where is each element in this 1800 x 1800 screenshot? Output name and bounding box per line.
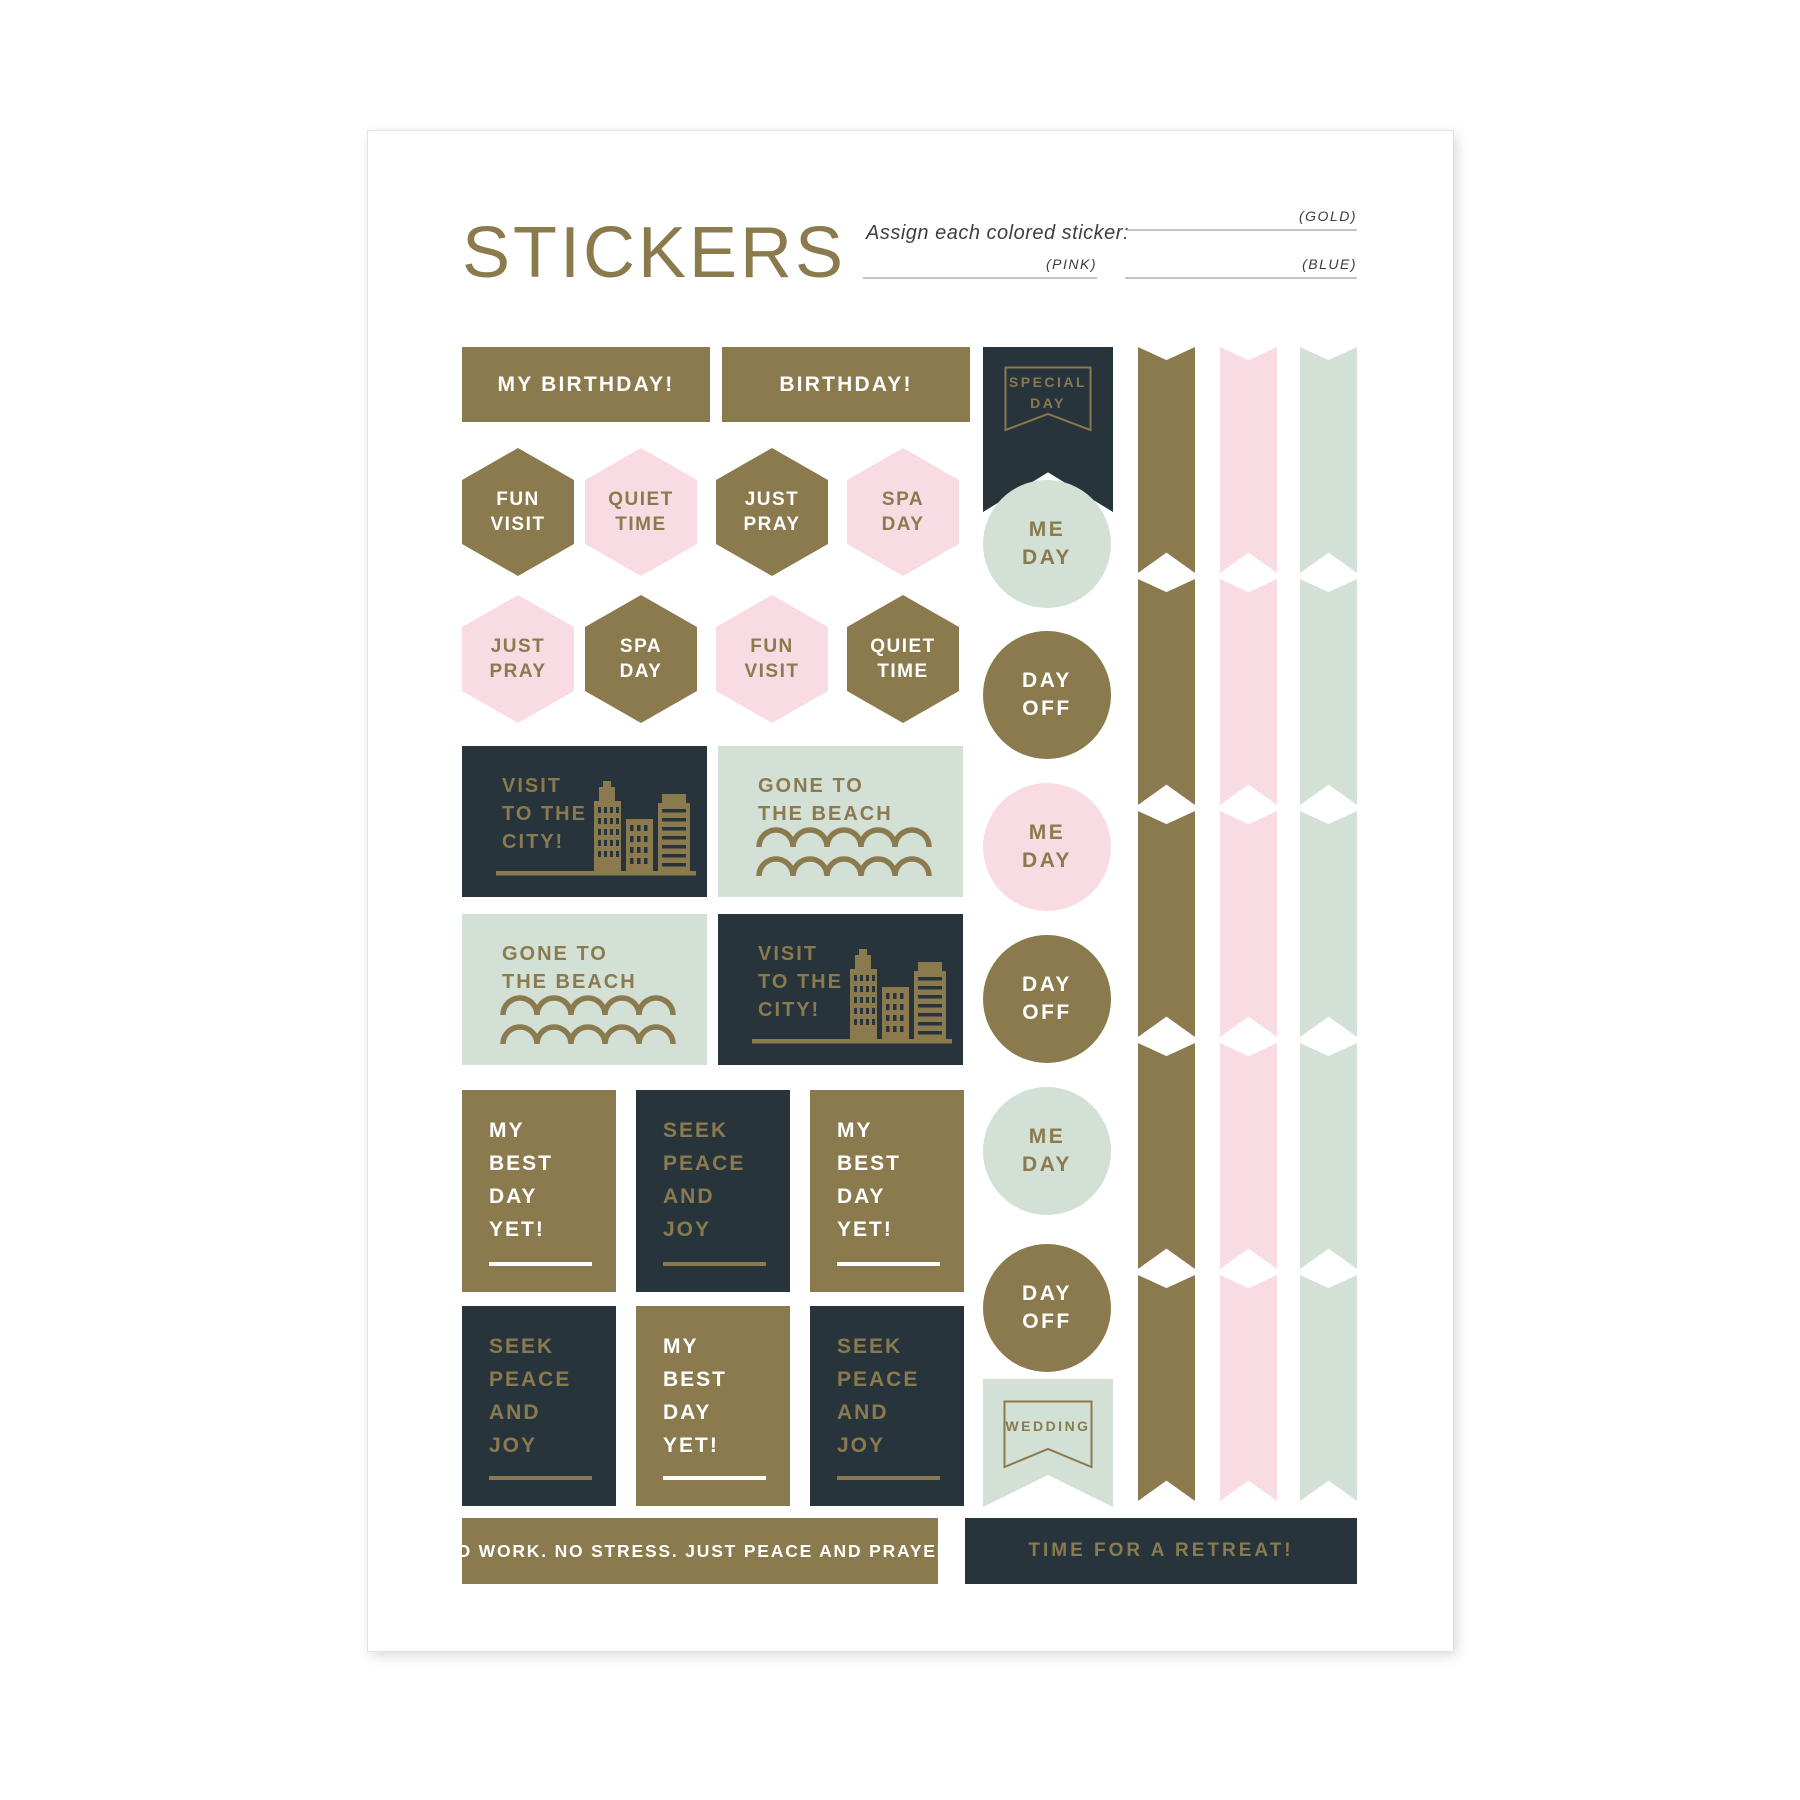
hex-label: JUST [491, 634, 546, 659]
square-label-line: MY [837, 1114, 964, 1147]
square-label-line: DAY [837, 1180, 964, 1213]
sticker-label: MY BIRTHDAY! [498, 373, 675, 397]
banner-label: WEDDING [983, 1418, 1113, 1434]
circle-label: DAY [1022, 544, 1072, 572]
hex-label: TIME [615, 512, 666, 537]
hex-label: PRAY [743, 512, 800, 537]
circle-label: ME [1029, 819, 1066, 847]
square-label-line: YET! [489, 1213, 616, 1246]
square-text: SEEK PEACE AND JOY [462, 1306, 616, 1462]
circle-day-off-3: DAY OFF [983, 1244, 1111, 1372]
hex-label: VISIT [490, 512, 545, 537]
hex-label: DAY [882, 512, 925, 537]
waves-icon [500, 987, 680, 1049]
strip-segment-mint [1300, 1043, 1357, 1269]
underline-rule [837, 1262, 940, 1266]
strip-segment-pink [1220, 1043, 1277, 1269]
circle-me-day-1: ME DAY [983, 480, 1111, 608]
hex-label: QUIET [870, 634, 936, 659]
underline-rule [663, 1262, 766, 1266]
sticker-best-day-2: MY BEST DAY YET! [810, 1090, 964, 1292]
strip-segment-gold [1138, 347, 1195, 573]
circle-label: DAY [1022, 1280, 1072, 1308]
circle-label: OFF [1022, 695, 1072, 723]
banner-label-line2: DAY [983, 395, 1113, 411]
sticker-seek-peace-3: SEEK PEACE AND JOY [810, 1306, 964, 1506]
square-label-line: YET! [837, 1213, 964, 1246]
bar-label: TIME FOR A RETREAT! [1028, 1540, 1293, 1562]
square-label-line: SEEK [837, 1330, 964, 1363]
strip-segment-gold [1138, 579, 1195, 805]
sticker-seek-peace-2: SEEK PEACE AND JOY [462, 1306, 616, 1506]
square-label-line: AND [663, 1180, 790, 1213]
blue-blank-line: (BLUE) [1125, 256, 1357, 279]
square-label-line: MY [663, 1330, 790, 1363]
page-title: STICKERS [462, 212, 846, 294]
sticker-seek-peace-1: SEEK PEACE AND JOY [636, 1090, 790, 1292]
sticker-visit-city-1: VISIT TO THE CITY! [462, 746, 707, 897]
square-label-line: PEACE [663, 1147, 790, 1180]
pink-blank-line: (PINK) [863, 256, 1097, 279]
circle-label: ME [1029, 1123, 1066, 1151]
square-label-line: PEACE [489, 1363, 616, 1396]
banner-outline-icon [1003, 1400, 1093, 1470]
hex-label: FUN [750, 634, 794, 659]
square-label-line: DAY [489, 1180, 616, 1213]
strip-segment-mint [1300, 1275, 1357, 1501]
underline-rule [837, 1476, 940, 1480]
circle-label: ME [1029, 516, 1066, 544]
square-label-line: JOY [663, 1213, 790, 1246]
sticker-gone-beach-1: GONE TO THE BEACH [718, 746, 963, 897]
square-label-line: AND [489, 1396, 616, 1429]
strip-segment-mint [1300, 347, 1357, 573]
hex-label: SPA [620, 634, 662, 659]
square-text: SEEK PEACE AND JOY [810, 1306, 964, 1462]
square-label-line: BEST [837, 1147, 964, 1180]
underline-rule [663, 1476, 766, 1480]
circle-day-off-1: DAY OFF [983, 631, 1111, 759]
strip-segment-pink [1220, 811, 1277, 1037]
sticker-retreat-bar: TIME FOR A RETREAT! [965, 1518, 1357, 1584]
strip-segment-mint [1300, 579, 1357, 805]
strip-segment-pink [1220, 347, 1277, 573]
circle-label: OFF [1022, 1308, 1072, 1336]
waves-icon [756, 819, 936, 881]
square-text: MY BEST DAY YET! [636, 1306, 790, 1462]
square-label-line: JOY [489, 1429, 616, 1462]
hex-label: JUST [745, 487, 800, 512]
strip-segment-gold [1138, 1275, 1195, 1501]
sticker-no-work-bar: NO WORK. NO STRESS. JUST PEACE AND PRAYE… [462, 1518, 938, 1584]
circle-label: DAY [1022, 847, 1072, 875]
hex-label: QUIET [608, 487, 674, 512]
sticker-visit-city-2: VISIT TO THE CITY! [718, 914, 963, 1065]
beach-label-line: GONE TO [758, 772, 893, 800]
circle-label: OFF [1022, 999, 1072, 1027]
sticker-gone-beach-2: GONE TO THE BEACH [462, 914, 707, 1065]
strip-segment-gold [1138, 1043, 1195, 1269]
bar-label: NO WORK. NO STRESS. JUST PEACE AND PRAYE… [442, 1541, 958, 1562]
strip-segment-pink [1220, 579, 1277, 805]
hex-label: SPA [882, 487, 924, 512]
sticker-birthday: BIRTHDAY! [722, 347, 970, 422]
circle-day-off-2: DAY OFF [983, 935, 1111, 1063]
circle-label: DAY [1022, 667, 1072, 695]
sticker-my-birthday: MY BIRTHDAY! [462, 347, 710, 422]
sticker-label: BIRTHDAY! [779, 373, 912, 397]
square-label-line: AND [837, 1396, 964, 1429]
square-label-line: BEST [489, 1147, 616, 1180]
assign-instruction: Assign each colored sticker: [866, 222, 1129, 245]
banner-label-line1: SPECIAL [983, 374, 1113, 390]
hex-label: FUN [496, 487, 540, 512]
square-label-line: SEEK [489, 1330, 616, 1363]
sticker-best-day-3: MY BEST DAY YET! [636, 1306, 790, 1506]
city-skyline-icon [496, 777, 696, 877]
hex-label: TIME [877, 659, 928, 684]
circle-me-day-3: ME DAY [983, 1087, 1111, 1215]
square-label-line: PEACE [837, 1363, 964, 1396]
pink-label: (PINK) [863, 256, 1097, 277]
square-text: MY BEST DAY YET! [810, 1090, 964, 1246]
hex-label: PRAY [489, 659, 546, 684]
square-label-line: MY [489, 1114, 616, 1147]
circle-me-day-2: ME DAY [983, 783, 1111, 911]
city-skyline-icon [752, 945, 952, 1045]
square-text: MY BEST DAY YET! [462, 1090, 616, 1246]
gold-label: (GOLD) [1127, 208, 1357, 229]
square-label-line: SEEK [663, 1114, 790, 1147]
sticker-best-day-1: MY BEST DAY YET! [462, 1090, 616, 1292]
hex-label: VISIT [744, 659, 799, 684]
square-label-line: DAY [663, 1396, 790, 1429]
circle-label: DAY [1022, 1151, 1072, 1179]
hex-label: DAY [620, 659, 663, 684]
blue-label: (BLUE) [1125, 256, 1357, 277]
square-label-line: JOY [837, 1429, 964, 1462]
underline-rule [489, 1262, 592, 1266]
strip-segment-pink [1220, 1275, 1277, 1501]
strip-segment-gold [1138, 811, 1195, 1037]
square-label-line: BEST [663, 1363, 790, 1396]
circle-label: DAY [1022, 971, 1072, 999]
beach-label-line: GONE TO [502, 940, 637, 968]
square-text: SEEK PEACE AND JOY [636, 1090, 790, 1246]
gold-blank-line: (GOLD) [1127, 208, 1357, 231]
underline-rule [489, 1476, 592, 1480]
strip-segment-mint [1300, 811, 1357, 1037]
square-label-line: YET! [663, 1429, 790, 1462]
